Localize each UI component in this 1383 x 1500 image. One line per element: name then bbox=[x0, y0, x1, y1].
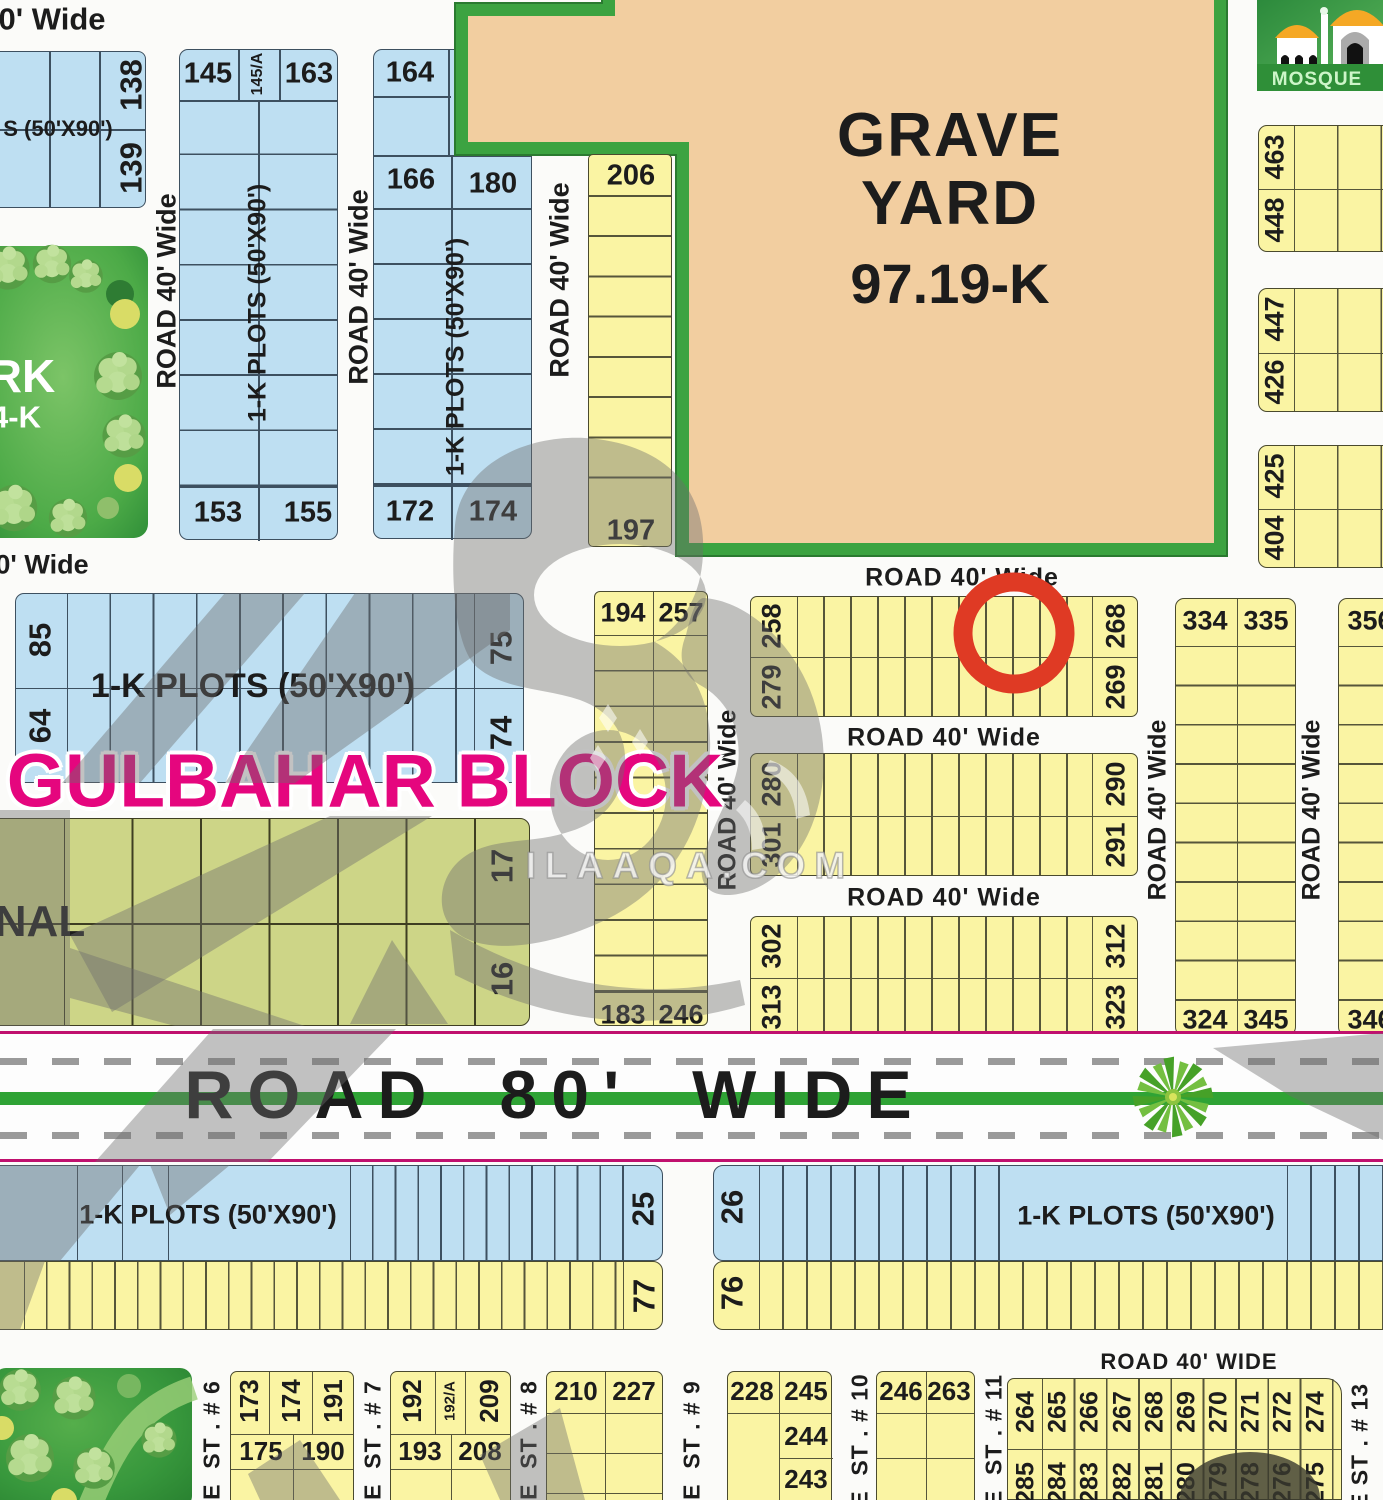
svg-text:ILAAQA.COM: ILAAQA.COM bbox=[526, 845, 854, 886]
